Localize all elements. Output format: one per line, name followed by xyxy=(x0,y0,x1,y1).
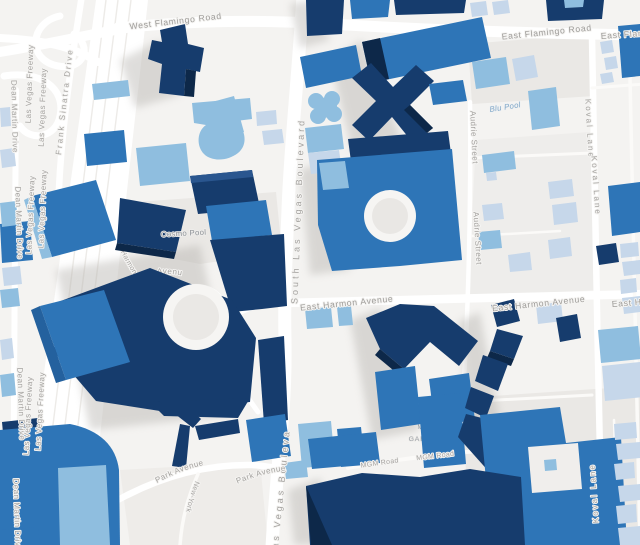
building xyxy=(314,96,338,119)
building xyxy=(512,55,538,81)
map-canvas[interactable]: West Harmon Avenue Harmon Circle MGM GRA… xyxy=(0,0,640,545)
building xyxy=(618,526,640,545)
building xyxy=(598,326,640,363)
building xyxy=(604,56,618,70)
building xyxy=(486,172,497,181)
building xyxy=(262,129,284,145)
building xyxy=(556,314,581,342)
building xyxy=(472,57,510,89)
building xyxy=(508,252,532,272)
building xyxy=(544,459,557,471)
building xyxy=(319,161,349,190)
building xyxy=(608,182,640,236)
plaza-circle xyxy=(173,294,219,340)
building xyxy=(305,124,344,153)
map-view: West Harmon Avenue Harmon Circle MGM GRA… xyxy=(0,0,640,545)
building xyxy=(0,338,14,360)
building xyxy=(552,202,578,225)
building xyxy=(58,465,110,545)
building xyxy=(429,80,467,105)
building xyxy=(206,200,272,241)
building xyxy=(614,422,637,440)
building xyxy=(620,242,639,258)
building xyxy=(548,237,572,259)
building xyxy=(492,0,510,15)
building xyxy=(614,462,635,480)
building xyxy=(375,366,421,430)
building xyxy=(84,130,127,166)
building xyxy=(0,373,16,397)
building xyxy=(622,260,640,276)
building xyxy=(256,110,277,126)
building xyxy=(564,0,584,8)
building xyxy=(600,72,614,84)
building xyxy=(616,504,637,524)
building xyxy=(482,203,504,221)
building xyxy=(306,0,344,36)
building xyxy=(350,0,390,19)
building xyxy=(528,87,560,130)
building xyxy=(0,107,11,127)
building xyxy=(2,266,22,286)
building xyxy=(620,278,637,294)
building-pool-clover xyxy=(308,91,342,124)
building xyxy=(616,442,640,460)
building xyxy=(394,0,466,15)
road-label: Dean Martin Drive xyxy=(9,80,20,153)
building xyxy=(337,306,353,326)
building xyxy=(618,484,640,502)
building-bottom-mass xyxy=(306,469,525,545)
road-label-dean-martin: Dean Martin Drive xyxy=(9,80,20,153)
building xyxy=(136,143,190,186)
building xyxy=(596,243,619,265)
building xyxy=(470,1,488,17)
building xyxy=(602,362,640,401)
building xyxy=(0,288,20,308)
courtyard xyxy=(372,198,408,234)
building xyxy=(600,40,614,54)
building-facet xyxy=(184,69,196,97)
building xyxy=(548,179,574,199)
